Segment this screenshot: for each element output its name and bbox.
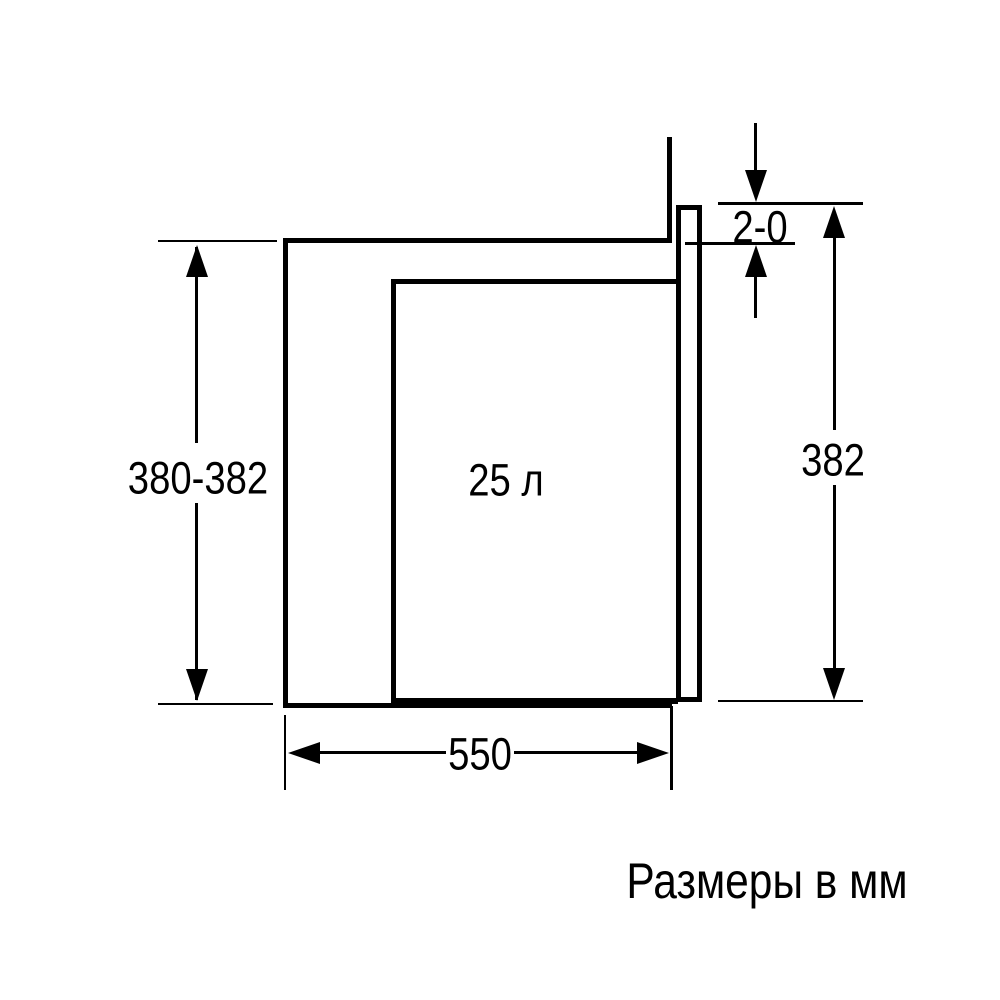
extension-line: [718, 700, 863, 702]
wall-line: [667, 137, 672, 243]
arrow-up-icon: [186, 245, 208, 277]
niche-left-line: [283, 238, 288, 708]
arrow-up-icon: [823, 206, 845, 238]
extension-line: [670, 706, 673, 790]
appliance-height-dimension-label: 382: [801, 438, 865, 483]
oven-top-line: [391, 279, 676, 284]
niche-width-dimension-label: 550: [448, 732, 512, 777]
arrow-right-icon: [637, 742, 669, 764]
niche-height-dimension-label: 380-382: [128, 456, 268, 501]
arrow-down-icon: [186, 669, 208, 701]
extension-line: [158, 703, 273, 705]
dimension-line: [316, 751, 446, 754]
door-panel: [676, 205, 702, 702]
front-clearance-dimension-label: 2-0: [732, 205, 787, 250]
arrow-down-icon: [823, 668, 845, 700]
capacity-label: 25 л: [468, 458, 544, 503]
arrow-tail-line: [754, 123, 757, 172]
niche-top-line: [285, 238, 672, 243]
installation-dimension-diagram: 380-382 2-0 382 550 25 л Размеры в мм: [0, 0, 1000, 1000]
extension-line: [284, 715, 286, 790]
dimension-line: [514, 751, 639, 754]
arrow-left-icon: [288, 742, 320, 764]
arrow-down-icon: [745, 170, 767, 202]
units-caption: Размеры в мм: [626, 856, 907, 906]
dimension-line: [833, 238, 836, 430]
arrow-tail-line: [754, 275, 757, 318]
oven-left-line: [391, 279, 396, 704]
extension-line: [158, 240, 277, 242]
dimension-line: [833, 485, 836, 670]
oven-bottom-line: [391, 698, 678, 704]
